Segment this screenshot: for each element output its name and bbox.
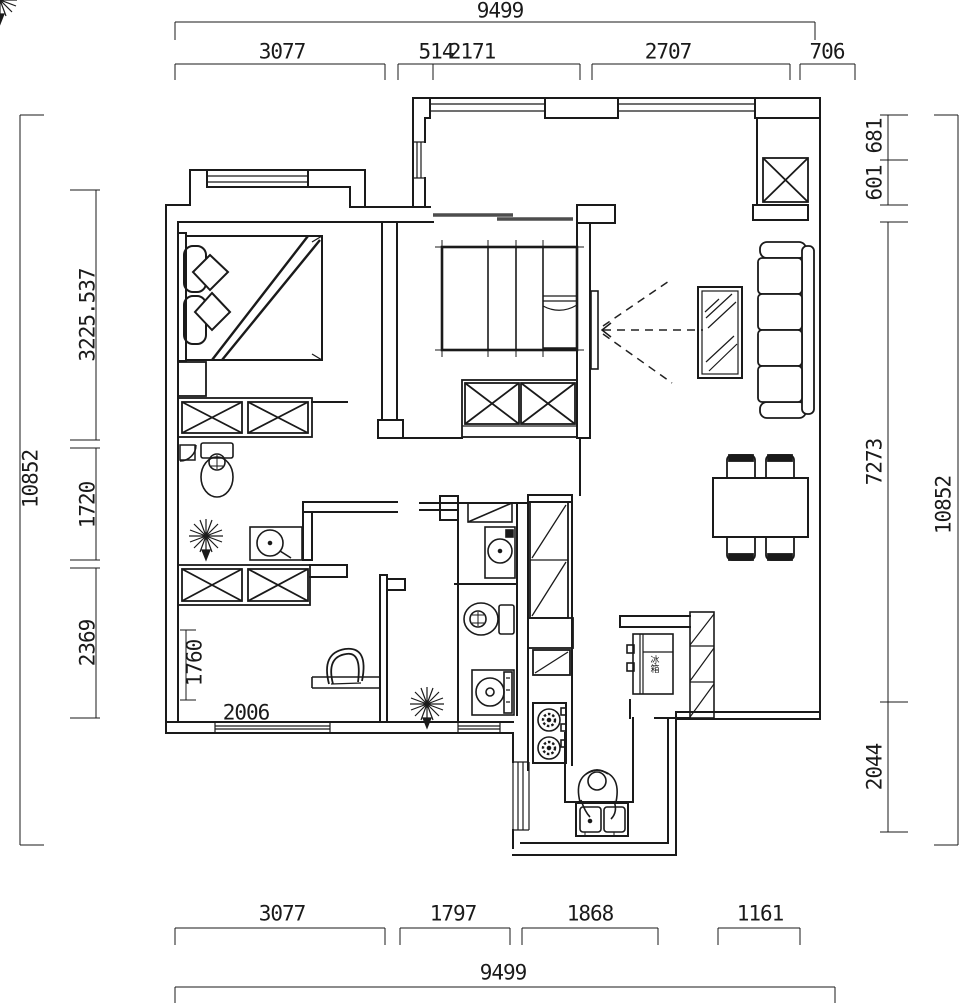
wardrobe-bedroom2 <box>178 565 310 605</box>
cabinet-x-top-right <box>763 158 808 202</box>
nightstand <box>178 362 206 396</box>
wardrobe-bedroom1 <box>178 398 312 437</box>
washing-machine <box>472 670 514 715</box>
floor-plan-drawing <box>0 0 975 1008</box>
dim-bottom-1868: 1868 <box>567 904 614 925</box>
tv <box>591 291 598 369</box>
sofa <box>758 242 814 418</box>
dim-top-overall: 9499 <box>477 1 524 22</box>
walls <box>166 98 820 855</box>
dim-top-706: 706 <box>810 42 845 63</box>
desk-chair <box>327 649 364 684</box>
fridge-label: 冰箱 <box>648 655 661 673</box>
dim-right-7273: 7273 <box>865 439 886 486</box>
sliding-door <box>433 215 573 219</box>
window-bath-bottom <box>458 722 500 733</box>
dimline-bottom-1797 <box>400 928 510 945</box>
closet <box>435 240 584 357</box>
dim-right-601: 601 <box>865 166 886 201</box>
dim-bottom-overall: 9499 <box>480 963 527 984</box>
window-bedroom1-top <box>207 176 308 182</box>
dimline-top-3077 <box>175 64 385 80</box>
stove <box>533 703 566 763</box>
dim-right-2044: 2044 <box>865 744 886 791</box>
window-entry-left <box>413 142 425 178</box>
bath-cabinet <box>468 503 512 522</box>
dimline-top-2707 <box>592 64 790 80</box>
window-kitchen-left <box>513 762 529 830</box>
dim-interior-1760: 1760 <box>185 640 206 687</box>
dimline-bottom-1868 <box>522 928 658 945</box>
washbasin <box>485 527 515 578</box>
pantry-cabinet <box>690 612 714 718</box>
hall-basin <box>250 527 302 560</box>
dim-top-3077: 3077 <box>259 42 306 63</box>
cabinet-x-midroom <box>462 380 577 437</box>
dimline-top-706 <box>800 64 855 80</box>
toilet-bath <box>464 603 514 635</box>
dim-bottom-3077: 3077 <box>259 904 306 925</box>
dimline-bottom-1161 <box>718 928 800 945</box>
dim-right-overall: 10852 <box>934 476 955 534</box>
dining-set <box>713 455 808 560</box>
floor-plan-page: 9499 3077 514 2171 2707 706 3077 1797 18… <box>0 0 975 1008</box>
dim-top-2707: 2707 <box>645 42 692 63</box>
dim-bottom-1797: 1797 <box>430 904 477 925</box>
potted-plants <box>0 0 444 728</box>
dim-left-1720: 1720 <box>78 482 99 529</box>
desk <box>312 677 380 688</box>
window-top-2 <box>618 104 755 111</box>
toilet-hall <box>201 443 233 497</box>
tall-cabinet <box>528 502 573 675</box>
dimline-bottom-outer <box>175 987 835 1003</box>
tv-viewing-lines <box>603 279 703 383</box>
shower-corner <box>180 445 196 461</box>
dim-left-2369: 2369 <box>78 620 99 667</box>
coffee-table-mirror <box>698 287 742 378</box>
dimline-top-514-2171 <box>398 64 580 80</box>
dim-left-3225-537: 3225.537 <box>78 268 99 361</box>
dimline-top-outer <box>175 22 815 40</box>
bed <box>178 233 322 361</box>
dim-right-681: 681 <box>865 119 886 154</box>
dim-interior-2006: 2006 <box>223 703 270 724</box>
person-figure <box>578 770 617 819</box>
dim-bottom-1161: 1161 <box>737 904 784 925</box>
dimline-bottom-3077 <box>175 928 385 945</box>
dim-left-overall: 10852 <box>21 450 42 508</box>
dim-top-2171: 2171 <box>449 42 496 63</box>
window-top-1 <box>430 104 545 111</box>
